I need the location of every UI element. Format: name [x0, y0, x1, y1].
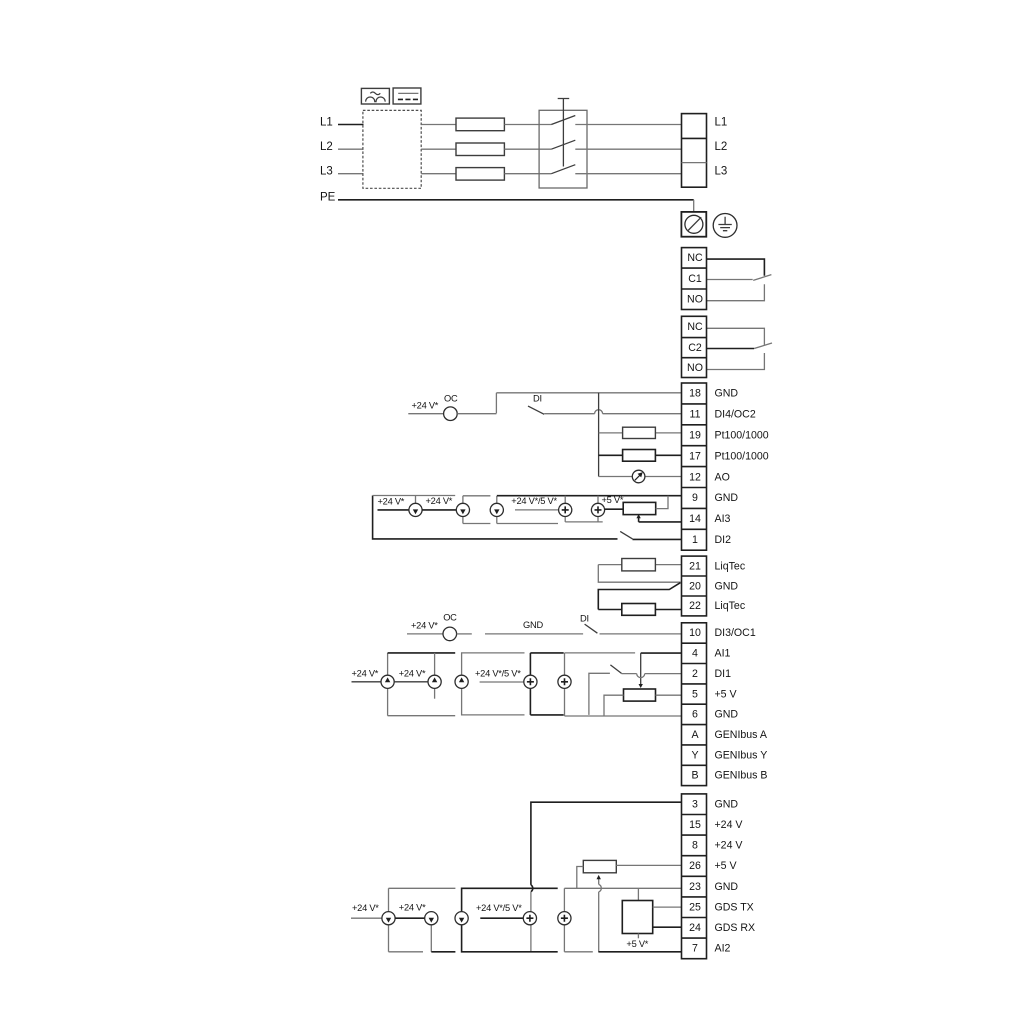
svg-text:NC: NC [687, 321, 703, 333]
svg-text:+24 V*: +24 V* [411, 621, 438, 631]
svg-text:4: 4 [692, 648, 698, 660]
svg-text:23: 23 [689, 881, 701, 893]
svg-text:9: 9 [692, 492, 698, 504]
svg-text:GND: GND [715, 709, 739, 721]
svg-text:14: 14 [689, 513, 701, 525]
svg-text:+24 V: +24 V [715, 840, 744, 852]
svg-text:Pt100/1000: Pt100/1000 [715, 430, 769, 442]
svg-text:12: 12 [689, 471, 701, 483]
svg-text:GENIbus A: GENIbus A [715, 729, 768, 741]
svg-text:24: 24 [689, 922, 701, 934]
svg-text:DI3/OC1: DI3/OC1 [715, 627, 756, 639]
svg-text:17: 17 [689, 450, 701, 462]
svg-text:11: 11 [690, 409, 701, 421]
svg-text:L3: L3 [715, 166, 728, 178]
svg-text:GDS TX: GDS TX [715, 901, 754, 913]
svg-text:21: 21 [689, 560, 701, 572]
svg-text:C1: C1 [688, 273, 702, 285]
svg-text:GND: GND [715, 388, 739, 400]
svg-text:+5 V*: +5 V* [626, 939, 648, 949]
svg-text:GENIbus B: GENIbus B [715, 770, 768, 782]
svg-text:1: 1 [692, 534, 698, 546]
svg-text:25: 25 [689, 901, 701, 913]
svg-text:AO: AO [715, 471, 730, 483]
svg-text:10: 10 [689, 627, 701, 639]
svg-text:5: 5 [692, 688, 698, 700]
svg-text:GND: GND [523, 620, 543, 630]
svg-text:AI2: AI2 [715, 943, 731, 955]
svg-text:8: 8 [692, 840, 698, 852]
svg-text:+24 V*: +24 V* [412, 401, 439, 411]
svg-text:OC: OC [444, 393, 458, 403]
svg-text:2: 2 [692, 668, 698, 680]
svg-text:NO: NO [687, 294, 703, 306]
svg-text:GENIbus Y: GENIbus Y [715, 749, 768, 761]
svg-text:LiqTec: LiqTec [715, 600, 746, 612]
svg-text:+5 V: +5 V [715, 688, 738, 700]
svg-text:NC: NC [687, 252, 703, 264]
svg-text:6: 6 [692, 709, 698, 721]
svg-text:DI: DI [580, 614, 589, 624]
svg-text:20: 20 [689, 580, 701, 592]
svg-text:LiqTec: LiqTec [715, 560, 746, 572]
svg-text:26: 26 [689, 860, 701, 872]
svg-text:C2: C2 [688, 342, 702, 354]
svg-text:18: 18 [689, 388, 701, 400]
svg-text:+24 V*: +24 V* [352, 669, 379, 679]
svg-text:NO: NO [687, 362, 703, 374]
svg-text:+24 V*/5 V*: +24 V*/5 V* [476, 903, 522, 913]
svg-text:+24 V*: +24 V* [426, 496, 453, 506]
svg-text:+24 V*/5 V*: +24 V*/5 V* [511, 496, 557, 506]
svg-text:GND: GND [715, 492, 739, 504]
svg-text:L2: L2 [320, 141, 333, 153]
svg-text:Pt100/1000: Pt100/1000 [715, 450, 769, 462]
svg-text:+5 V: +5 V [715, 860, 738, 872]
svg-text:15: 15 [689, 819, 701, 831]
svg-text:AI1: AI1 [715, 648, 731, 660]
svg-text:B: B [691, 770, 698, 782]
svg-text:AI3: AI3 [715, 513, 731, 525]
svg-text:+5 V*: +5 V* [602, 495, 624, 505]
svg-text:+24 V*: +24 V* [378, 497, 405, 507]
svg-text:+24 V*: +24 V* [399, 902, 426, 912]
svg-text:DI2: DI2 [715, 534, 732, 546]
svg-text:GND: GND [715, 798, 739, 810]
svg-text:19: 19 [689, 430, 701, 442]
svg-text:DI: DI [533, 394, 542, 404]
svg-text:L2: L2 [715, 141, 728, 153]
svg-text:A: A [691, 729, 699, 741]
svg-text:L3: L3 [320, 166, 333, 178]
svg-text:Y: Y [691, 749, 698, 761]
svg-text:GDS RX: GDS RX [715, 922, 756, 934]
svg-text:+24 V: +24 V [715, 819, 744, 831]
svg-text:L1: L1 [715, 116, 728, 128]
svg-text:+24 V*: +24 V* [399, 669, 426, 679]
svg-text:DI1: DI1 [715, 668, 732, 680]
svg-text:PE: PE [320, 191, 336, 203]
svg-text:DI4/OC2: DI4/OC2 [715, 409, 756, 421]
svg-text:OC: OC [443, 613, 457, 623]
svg-text:+24 V*/5 V*: +24 V*/5 V* [475, 669, 521, 679]
svg-text:7: 7 [692, 943, 698, 955]
svg-text:GND: GND [715, 580, 739, 592]
svg-text:L1: L1 [320, 116, 333, 128]
svg-text:3: 3 [692, 798, 698, 810]
svg-text:+24 V*: +24 V* [352, 903, 379, 913]
svg-text:22: 22 [689, 600, 701, 612]
svg-text:GND: GND [715, 881, 739, 893]
